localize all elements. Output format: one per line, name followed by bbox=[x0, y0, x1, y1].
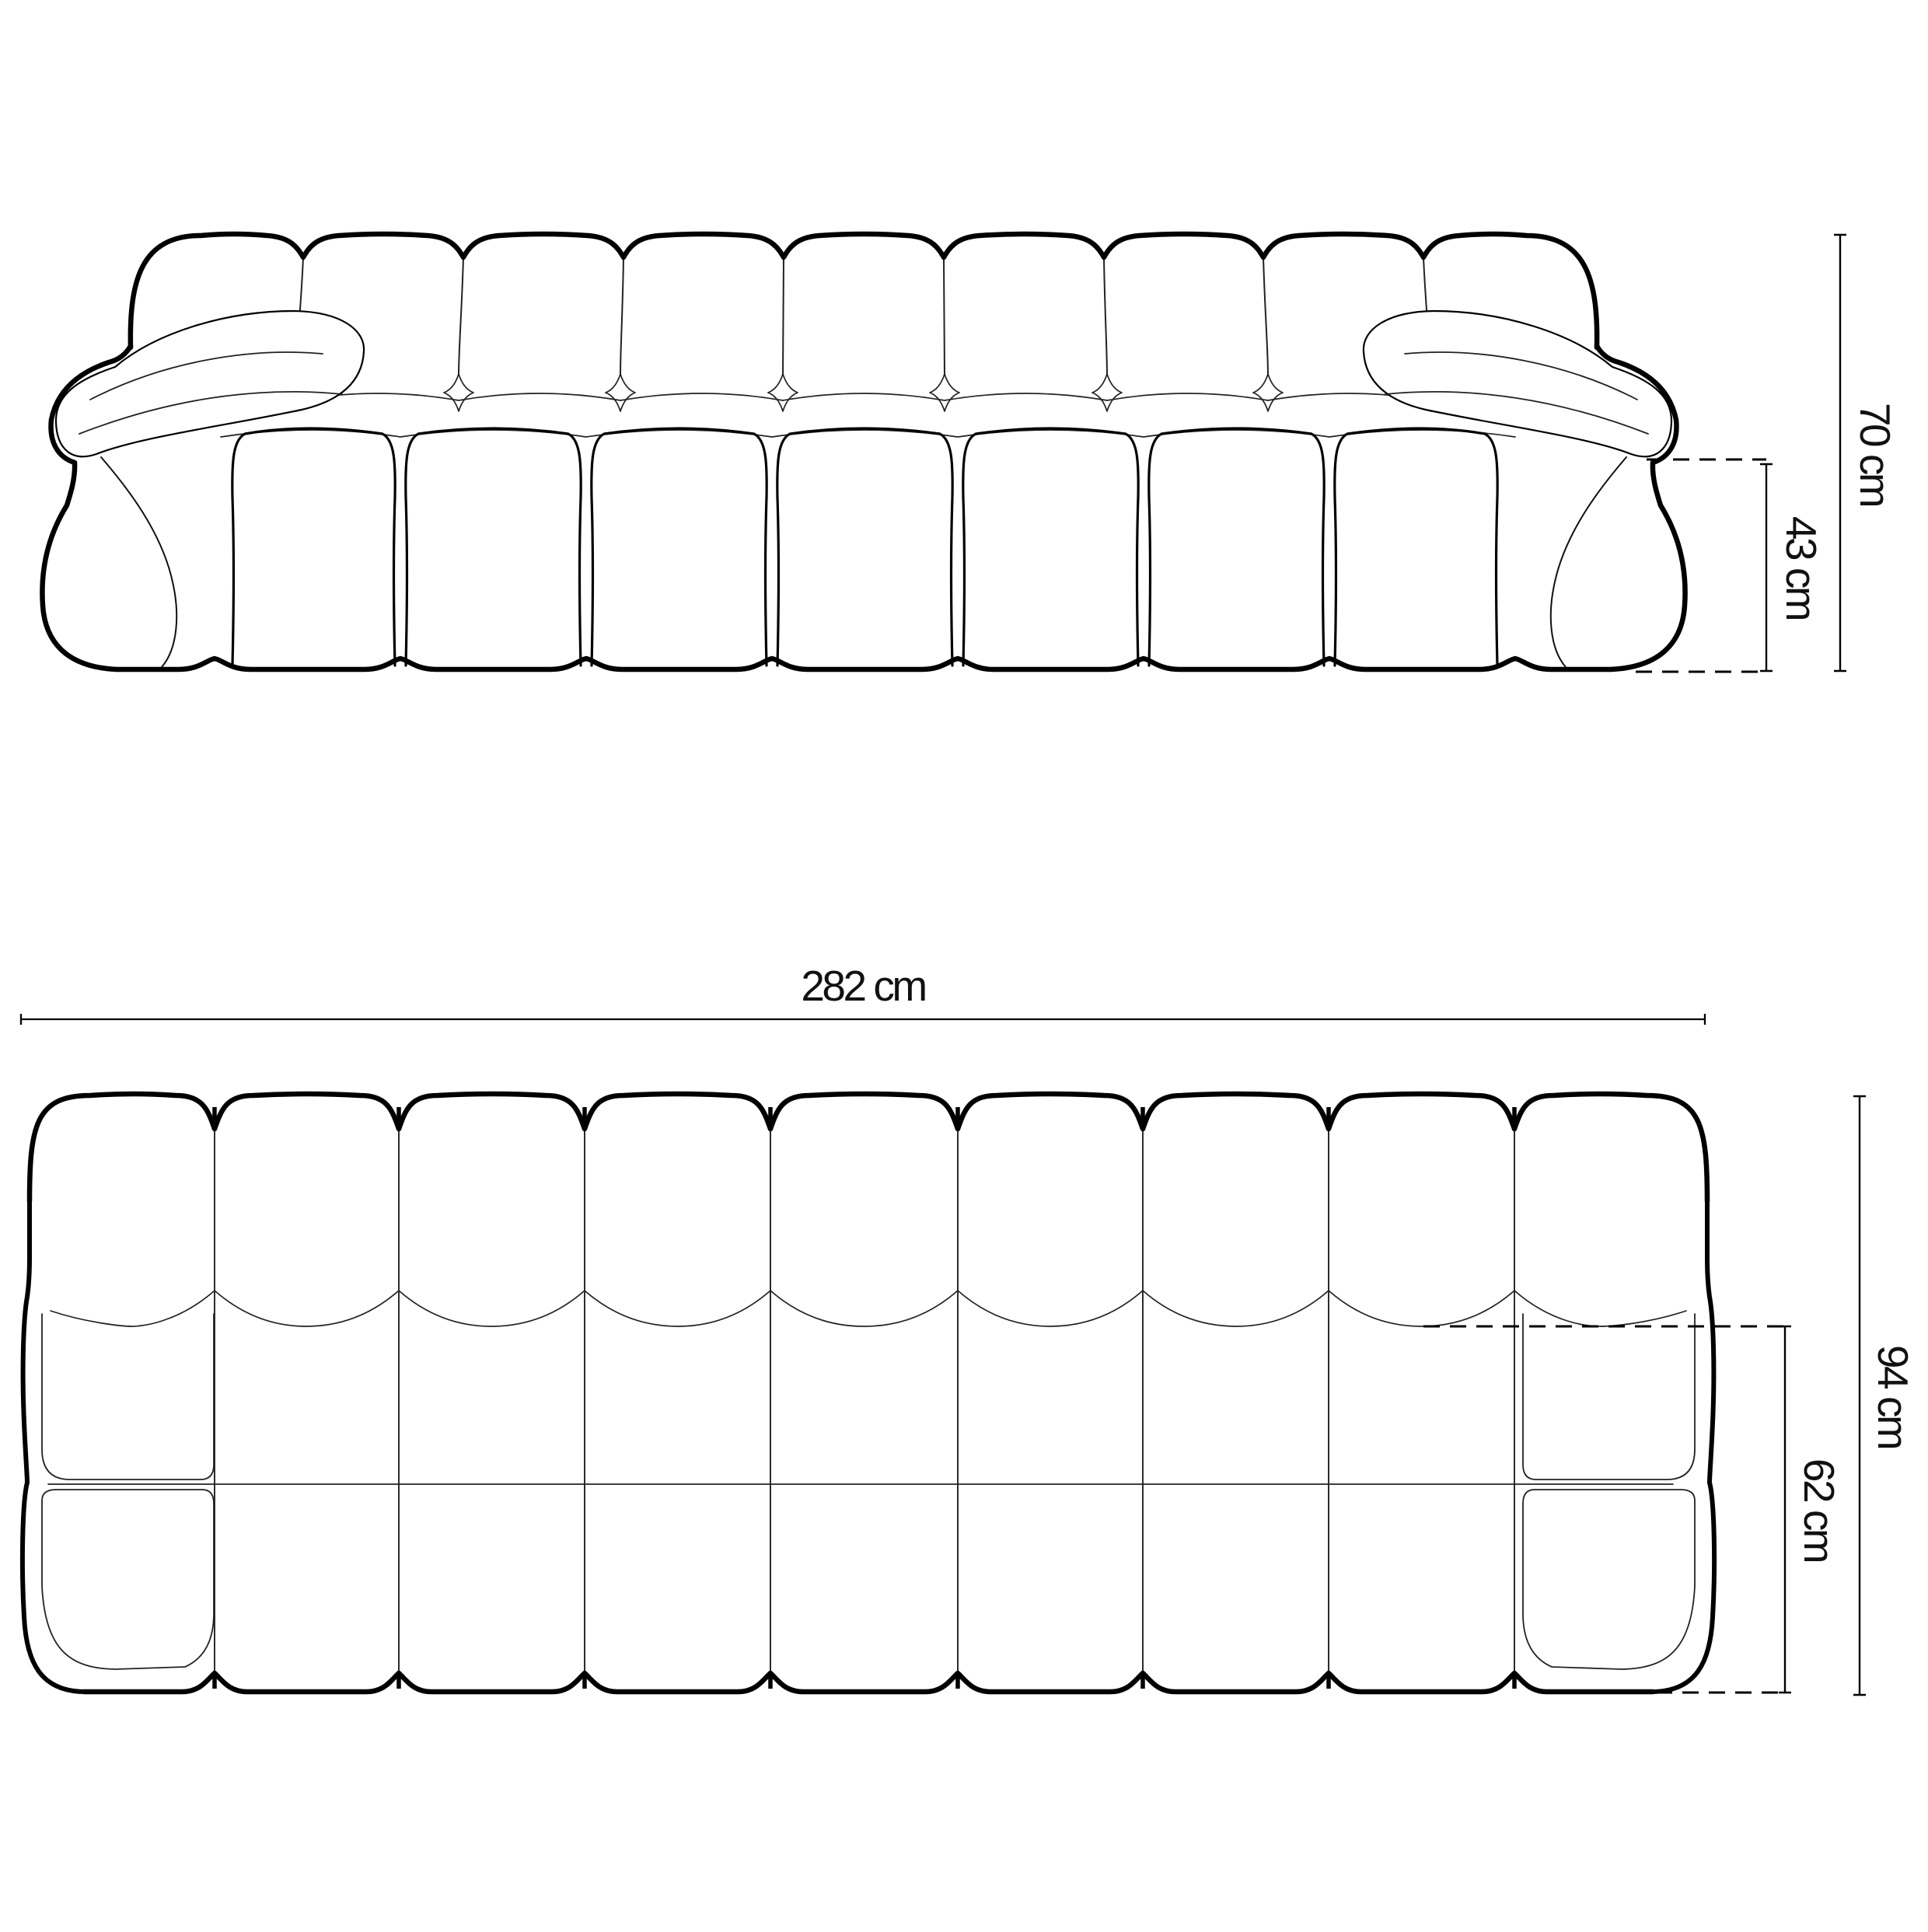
svg-text:94 cm: 94 cm bbox=[1869, 1345, 1917, 1448]
svg-text:62 cm: 62 cm bbox=[1795, 1459, 1843, 1562]
svg-text:282 cm: 282 cm bbox=[801, 962, 925, 1010]
svg-text:70 cm: 70 cm bbox=[1851, 403, 1899, 506]
svg-text:43 cm: 43 cm bbox=[1777, 516, 1825, 620]
